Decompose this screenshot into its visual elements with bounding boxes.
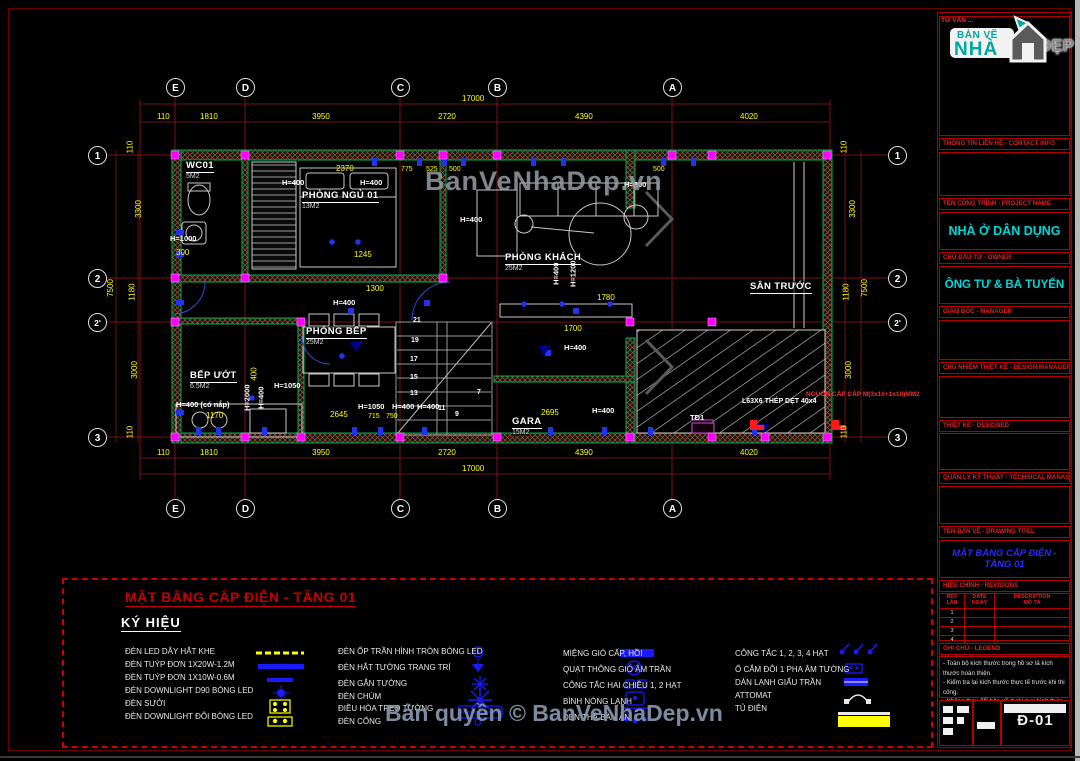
legend-item: ĐÈN TUÝP ĐƠN 1X20W-1.2M: [125, 661, 235, 669]
plan-annotation: 2695: [541, 409, 559, 417]
legend-item: ĐÈN GẮN TƯỜNG: [338, 680, 407, 688]
room-area: 25M2: [505, 265, 523, 272]
legend-item: ATTOMAT: [735, 692, 772, 700]
rev-header: NGÀY: [972, 600, 988, 606]
tb-designed-box: [939, 433, 1070, 470]
plan-annotation: 525: [426, 166, 438, 173]
plan-annotation: 2645: [330, 411, 348, 419]
legend-item: ĐÈN ỐP TRẦN HÌNH TRÒN BÓNG LED: [338, 648, 482, 656]
tb-designed-label: THIẾT KẾ - DESIGNED: [939, 420, 1070, 432]
dim: 110: [126, 426, 134, 439]
plan-annotation: H=1000: [170, 235, 196, 243]
room-label-kitchen: PHÒNG BẾP: [306, 326, 367, 339]
legend-item: ĐÈN CỔNG: [338, 718, 381, 726]
legend-item: DÀN LẠNH GIẤU TRẦN: [735, 679, 821, 687]
plan-annotation: 1700: [564, 325, 582, 333]
room-label-wc: WC01: [186, 160, 214, 173]
legend-item: QUẠT THÔNG GIÓ ÂM TRẦN: [563, 666, 671, 674]
grid-bubble-col: D: [236, 499, 255, 518]
stair-number: 13: [410, 390, 418, 397]
plan-annotation: H=400: [417, 403, 439, 411]
stair-number: 15: [410, 374, 418, 381]
plan-annotation: 1245: [354, 251, 372, 259]
legend-item: Ổ CẮM ĐÔI 1 PHA ÂM TƯỜNG: [735, 666, 849, 674]
plan-annotation: H=400 (có nắp): [176, 401, 230, 409]
dim: 2720: [438, 113, 456, 121]
grid-bubble-col: A: [663, 78, 682, 97]
stair-number: 7: [477, 389, 481, 396]
tb-contact-box: [939, 152, 1070, 196]
tb-tech-manager-label: QUẢN LÝ KỸ THUẬT - TECHNICAL MANAGER: [939, 472, 1070, 484]
legend-item: TỦ ĐIỆN: [735, 705, 767, 713]
legend-heading: KÝ HIỆU: [121, 615, 181, 632]
dim: 4020: [740, 113, 758, 121]
grid-bubble-col: B: [488, 78, 507, 97]
tb-notes-box: - Toàn bộ kích thước trong hồ sơ là kích…: [939, 656, 1070, 698]
grid-bubble-row: 3: [88, 428, 107, 447]
plan-annotation: 500: [449, 166, 461, 173]
legend-item: ĐÈN THẢ BÀN ĂN: [563, 714, 630, 722]
dim-total-bottom: 17000: [462, 465, 484, 473]
plan-annotation: H=1050: [274, 382, 300, 390]
plan-annotation: 750: [386, 413, 398, 420]
grid-bubble-row: 2: [888, 269, 907, 288]
tb-design-manager-label: CHỦ NHIỆM THIẾT KẾ - DESIGN MANAGER: [939, 362, 1070, 374]
legend-item: ĐÈN LED DÂY HẮT KHE: [125, 648, 215, 656]
dim: 110: [840, 141, 848, 154]
grid-bubble-row: 3: [888, 428, 907, 447]
tb-design-manager-box: [939, 376, 1070, 418]
plan-annotation: H=1200: [569, 261, 577, 287]
dim: 3300: [849, 200, 857, 218]
legend-item: MIỆNG GIÓ CẤP, HỒI: [563, 650, 642, 658]
dim: 110: [840, 426, 848, 439]
dim-total-right: 7500: [861, 279, 869, 297]
plan-annotation: H=800: [624, 181, 646, 189]
stair-number: 9: [455, 411, 459, 418]
grid-bubble-col: B: [488, 499, 507, 518]
tb-revision-table: REV LẦN DATE NGÀY DESCRIPTION MÔ TẢ 1 2 …: [939, 593, 1070, 641]
dim: 1180: [843, 283, 851, 300]
dim: 110: [126, 141, 134, 154]
plan-annotation: 1780: [597, 294, 615, 302]
driveway-ramp: [637, 330, 825, 433]
tb-project-label: TÊN CÔNG TRÌNH - PROJECT NAME: [939, 198, 1070, 210]
dim: 1810: [200, 449, 218, 457]
stair-number: 21: [413, 317, 421, 324]
grid-bubble-row: 1: [88, 146, 107, 165]
plan-annotation: H=400: [564, 344, 586, 352]
rev-header: LẦN: [946, 600, 957, 606]
plan-annotation: 500: [653, 166, 665, 173]
room-label-front-yard: SÂN TRƯỚC: [750, 281, 812, 294]
legend-item: ĐÈN DOWNLIGHT ĐÔI BÓNG LED: [125, 713, 253, 721]
plan-annotation: H=400: [460, 216, 482, 224]
grid-bubble-row: 1: [888, 146, 907, 165]
legend-item: ĐÈN TUÝP ĐƠN 1X10W-0.6M: [125, 674, 235, 682]
dim: 3000: [131, 361, 139, 379]
drawing-sheet: E D C B A E D C B A 1 2 2' 3 1 2 2' 3 17…: [0, 0, 1080, 761]
house-icon: [1005, 15, 1051, 65]
power-supply-note: NGUỒN CẤP CÁP M(3x16+1x10)MM2: [806, 392, 920, 399]
tb-project-name: NHÀ Ở DÂN DỤNG: [939, 212, 1070, 250]
tb-note: - Toàn bộ kích thước trong hồ sơ là kích…: [943, 659, 1066, 678]
dim: 3950: [312, 113, 330, 121]
stair-number: 19: [411, 337, 419, 344]
plan-annotation: 775: [401, 166, 413, 173]
room-label-garage: GARA: [512, 416, 542, 429]
steel-note: L63X6 THÉP DẸT 40x4: [742, 398, 817, 405]
plan-annotation: H=400: [392, 403, 414, 411]
tb-owner-name: ÔNG TƯ & BÀ TUYẾN: [939, 266, 1070, 304]
plan-annotation: H=400: [552, 263, 560, 285]
grid-bubble-col: C: [391, 499, 410, 518]
legend-item: CÔNG TẮC HAI CHIỀU 1, 2 HẠT: [563, 682, 682, 690]
legend-item: ĐÈN SƯỞI: [125, 700, 165, 708]
tb-note: - Kiểm tra lại kích thước thực tế trước …: [943, 678, 1066, 697]
grid-bubble-col: E: [166, 78, 185, 97]
dim: 2720: [438, 449, 456, 457]
legend-item: ĐÈN DOWNLIGHT D90 BÓNG LED: [125, 687, 253, 695]
dim-total-top: 17000: [462, 95, 484, 103]
room-area: 5M2: [186, 173, 200, 180]
plan-annotation: 300: [176, 249, 189, 257]
plan-annotation: H=2000: [243, 385, 251, 411]
stair-number: 11: [438, 405, 445, 412]
plan-annotation: 2370: [336, 165, 354, 173]
rev-row-number: 1: [940, 609, 965, 617]
room-area: 6.5M2: [190, 383, 209, 390]
grid-bubble-col: D: [236, 78, 255, 97]
tb-manager-box: [939, 320, 1070, 360]
plan-annotation: H=400: [333, 299, 355, 307]
tb-tech-manager-box: [939, 486, 1070, 524]
grid-bubble-col: A: [663, 499, 682, 518]
dim: 3300: [135, 200, 143, 218]
plan-annotation: H=400: [282, 179, 304, 187]
tb-owner-label: CHỦ ĐẦU TƯ - OWNER: [939, 252, 1070, 264]
legend-item: ĐÈN HẮT TƯỜNG TRANG TRÍ: [338, 664, 451, 672]
plan-annotation: H=400: [592, 407, 614, 415]
plan-annotation: 400: [251, 367, 259, 380]
dim: 1180: [129, 283, 137, 300]
legend-item: ĐÈN CHÙM: [338, 693, 381, 701]
dim: 110: [157, 113, 170, 121]
plan-annotation: 1170: [206, 412, 223, 420]
tb-drawing-title: MẶT BẰNG CẤP ĐIỆN - TẦNG 01: [939, 540, 1070, 578]
dim: 3000: [845, 361, 853, 379]
plan-annotation: H=1050: [358, 403, 384, 411]
plan-annotation: H=400: [257, 387, 265, 409]
rev-row-number: 2: [940, 618, 965, 626]
legend-item: CÔNG TẮC 1, 2, 3, 4 HẠT: [735, 650, 829, 658]
room-area: 15M2: [512, 429, 530, 436]
dim: 3950: [312, 449, 330, 457]
room-area: 13M2: [302, 203, 320, 210]
tb-notes-label: GHI CHÚ - LEGEND: [939, 643, 1070, 655]
plan-annotation: 715: [368, 413, 380, 420]
room-label-wet-kitchen: BẾP ƯỚT: [190, 370, 237, 383]
room-area: 25M2: [306, 339, 324, 346]
grid-bubble-row: 2: [88, 269, 107, 288]
legend-item: ĐIỀU HÒA TREO TƯỜNG: [338, 705, 433, 713]
dim: 110: [157, 449, 170, 457]
sheet-number: Đ-01: [1001, 712, 1070, 729]
panel-label: TĐ1: [690, 414, 704, 422]
room-label-bedroom: PHÒNG NGỦ 01: [302, 190, 379, 203]
gate-lines: [794, 162, 804, 328]
brand-logo: BẢN VẼ NHÀ ĐẸP: [949, 9, 1071, 65]
logo-text-name: NHÀ: [954, 39, 998, 61]
tb-revisions-label: HIỆU CHỈNH - REVISIONS: [939, 580, 1070, 592]
tb-drawing-title-label: TÊN BẢN VẼ - DRAWING TITEL: [939, 526, 1070, 538]
grid-bubble-col: C: [391, 78, 410, 97]
rev-header: MÔ TẢ: [1023, 600, 1040, 606]
grid-bubble-col: E: [166, 499, 185, 518]
stair-number: 17: [410, 356, 418, 363]
dim-total-left: 7500: [107, 279, 115, 297]
legend-item: BÌNH NÓNG LẠNH: [563, 698, 632, 706]
plan-title: MẶT BẰNG CẤP ĐIỆN - TẦNG 01: [125, 589, 356, 607]
grid-bubble-row: 2': [88, 313, 107, 332]
dim: 4390: [575, 113, 593, 121]
tb-manager-label: GIÁM ĐỐC - MANAGER: [939, 306, 1070, 318]
rev-row-number: 3: [940, 627, 965, 635]
dim: 1810: [200, 113, 218, 121]
plan-annotation: 1300: [366, 285, 384, 293]
dim: 4390: [575, 449, 593, 457]
tb-contact-label: THÔNG TIN LIÊN HỆ - CONTACT INFO: [939, 138, 1070, 150]
grid-bubble-row: 2': [888, 313, 907, 332]
dim: 4020: [740, 449, 758, 457]
plan-annotation: H=400: [360, 179, 382, 187]
